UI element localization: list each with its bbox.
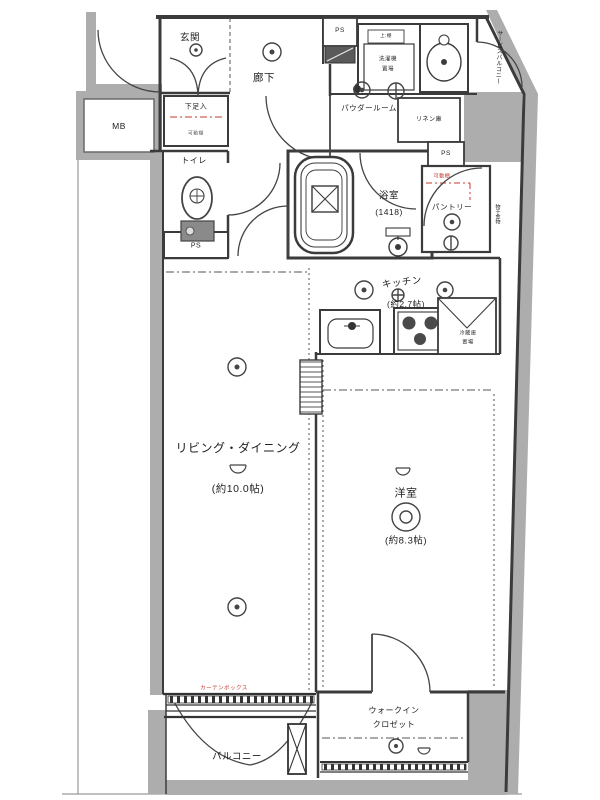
entrance-door-arc	[98, 30, 160, 92]
toilet-door-arc	[228, 163, 280, 215]
label-living-size: (約10.0帖)	[212, 484, 264, 495]
label-kitchen-size: (約2.7帖)	[387, 300, 425, 309]
pillar-icon	[288, 724, 306, 774]
kitchen-sink-icon	[320, 310, 380, 354]
label-fridge-1: 冷蔵庫	[459, 331, 476, 336]
label-fridge-2: 置場	[462, 340, 473, 345]
room-label-wic-1: ウォークイン	[369, 707, 420, 715]
counter-hatch	[300, 360, 322, 414]
label-pantry-shelf: 可動棚	[434, 175, 451, 180]
bedroom-door-arc	[372, 634, 430, 692]
upper-shelf-icon	[325, 46, 355, 63]
detector-icon	[396, 468, 410, 475]
stove-icon	[394, 308, 444, 354]
bathtub-icon	[295, 157, 353, 253]
detector-icon	[230, 465, 246, 473]
room-label-powder: パウダールーム	[341, 104, 397, 112]
room-label-balcony: バルコニー	[212, 752, 262, 762]
label-laundry-2: 置場	[382, 67, 394, 73]
label-ps-left: PS	[191, 243, 201, 250]
label-drying-pole: 物干金物	[495, 204, 500, 224]
floorplan-drawing	[0, 0, 600, 800]
label-upper-shelf: 上:棚	[380, 34, 392, 39]
label-curtain-box: カーテンボックス	[200, 686, 248, 692]
wic-window	[320, 762, 468, 772]
label-meter-box: MB	[112, 122, 126, 131]
label-shoe-shelf: 可動棚	[188, 133, 204, 138]
label-bath-size: (1418)	[375, 208, 403, 217]
room-label-pantry: パントリー	[432, 203, 472, 211]
floorplan-page: 玄関 廊下 PS 上:棚 洗濯機 置場 パウダールーム リネン庫 PS 可動棚 …	[0, 0, 600, 800]
room-label-toilet: トイレ	[181, 157, 207, 165]
room-label-bedroom: 洋室	[395, 489, 418, 500]
detector-icon	[418, 748, 430, 754]
room-label-genkan: 玄関	[180, 33, 200, 43]
toilet-icon	[181, 177, 214, 241]
living-door-arc	[238, 206, 288, 256]
label-ps-right: PS	[441, 151, 451, 158]
light-icon	[392, 503, 420, 531]
shoe-closet-doors-arc	[170, 58, 226, 96]
room-label-hallway: 廊下	[253, 73, 275, 84]
vanity-sink-icon	[420, 24, 468, 92]
label-shoe-cabinet: 下足入	[185, 104, 208, 111]
room-label-bath: 浴室	[379, 191, 399, 201]
balcony-window	[163, 694, 316, 717]
label-bedroom-size: (約8.3帖)	[385, 536, 427, 546]
room-label-wic-2: クロゼット	[373, 721, 416, 729]
label-laundry-1: 洗濯機	[379, 57, 397, 63]
label-linen: リネン庫	[416, 117, 442, 123]
label-ps-top: PS	[335, 28, 345, 35]
room-label-living: リビング・ダイニング	[175, 442, 300, 454]
